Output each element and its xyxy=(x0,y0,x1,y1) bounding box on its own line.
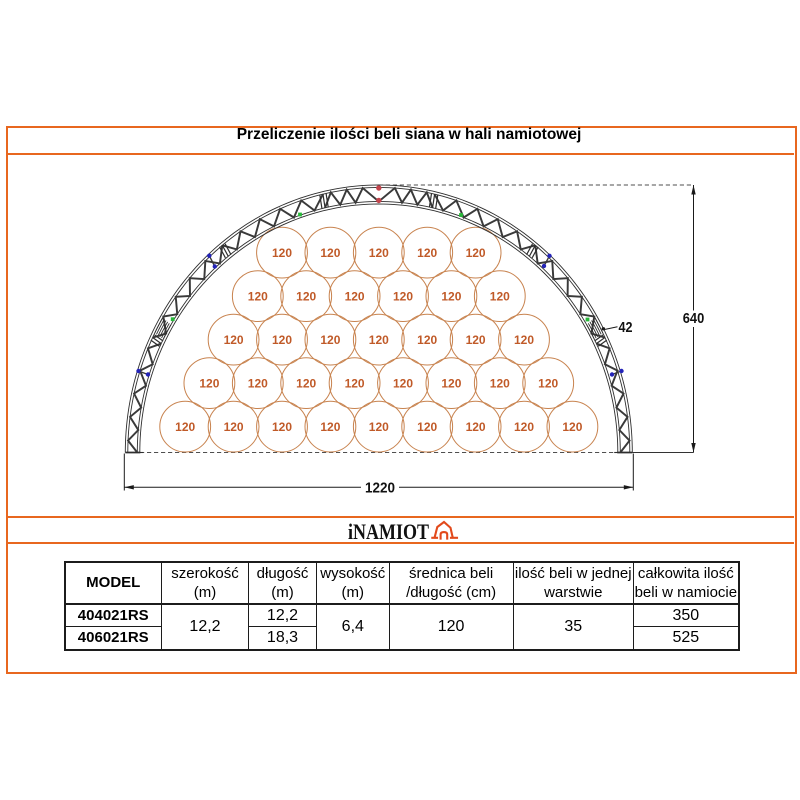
svg-text:120: 120 xyxy=(369,246,389,260)
svg-text:120: 120 xyxy=(466,246,486,260)
svg-text:120: 120 xyxy=(320,333,340,347)
svg-text:120: 120 xyxy=(490,289,510,303)
svg-text:120: 120 xyxy=(562,420,582,434)
svg-text:1220: 1220 xyxy=(365,480,395,496)
svg-text:120: 120 xyxy=(369,333,389,347)
svg-text:120: 120 xyxy=(224,420,244,434)
svg-text:120: 120 xyxy=(224,333,244,347)
svg-text:120: 120 xyxy=(490,376,510,390)
svg-text:120: 120 xyxy=(320,246,340,260)
svg-text:120: 120 xyxy=(272,246,292,260)
svg-text:120: 120 xyxy=(441,289,461,303)
svg-text:120: 120 xyxy=(538,376,558,390)
svg-text:120: 120 xyxy=(199,376,219,390)
svg-text:120: 120 xyxy=(466,420,486,434)
svg-text:120: 120 xyxy=(296,289,316,303)
svg-text:120: 120 xyxy=(514,333,534,347)
svg-text:120: 120 xyxy=(417,333,437,347)
svg-text:120: 120 xyxy=(345,376,365,390)
svg-text:120: 120 xyxy=(514,420,534,434)
svg-text:120: 120 xyxy=(441,376,461,390)
svg-text:120: 120 xyxy=(393,289,413,303)
svg-text:120: 120 xyxy=(369,420,389,434)
svg-text:120: 120 xyxy=(248,289,268,303)
svg-text:120: 120 xyxy=(296,376,316,390)
svg-text:120: 120 xyxy=(272,420,292,434)
svg-text:120: 120 xyxy=(272,333,292,347)
svg-text:640: 640 xyxy=(683,311,705,327)
svg-text:120: 120 xyxy=(248,376,268,390)
svg-text:120: 120 xyxy=(175,420,195,434)
svg-text:120: 120 xyxy=(345,289,365,303)
svg-text:42: 42 xyxy=(619,320,633,336)
svg-text:120: 120 xyxy=(417,420,437,434)
svg-text:120: 120 xyxy=(417,246,437,260)
svg-text:120: 120 xyxy=(466,333,486,347)
svg-text:120: 120 xyxy=(320,420,340,434)
svg-text:120: 120 xyxy=(393,376,413,390)
